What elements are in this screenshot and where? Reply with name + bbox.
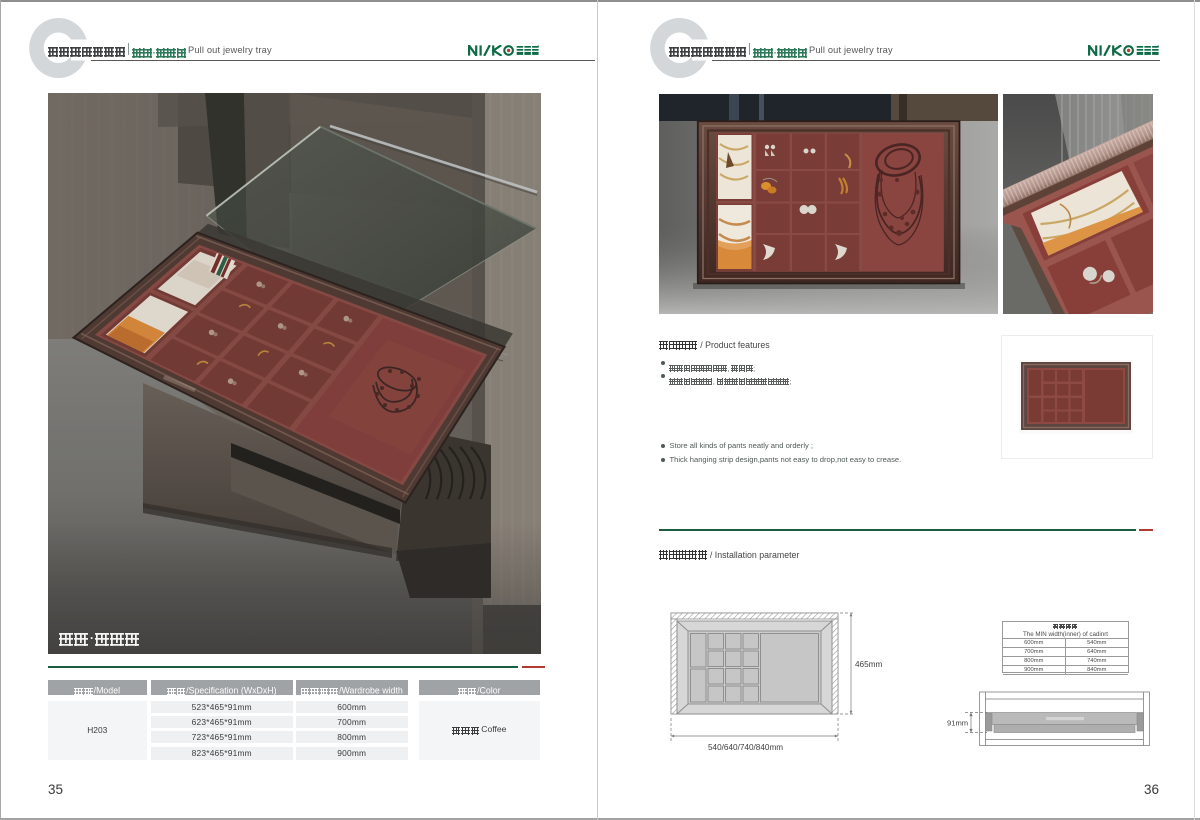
svg-text:91mm: 91mm <box>947 719 968 728</box>
svg-text:465mm: 465mm <box>855 660 882 669</box>
svg-text:540/640/740/840mm: 540/640/740/840mm <box>708 743 783 752</box>
